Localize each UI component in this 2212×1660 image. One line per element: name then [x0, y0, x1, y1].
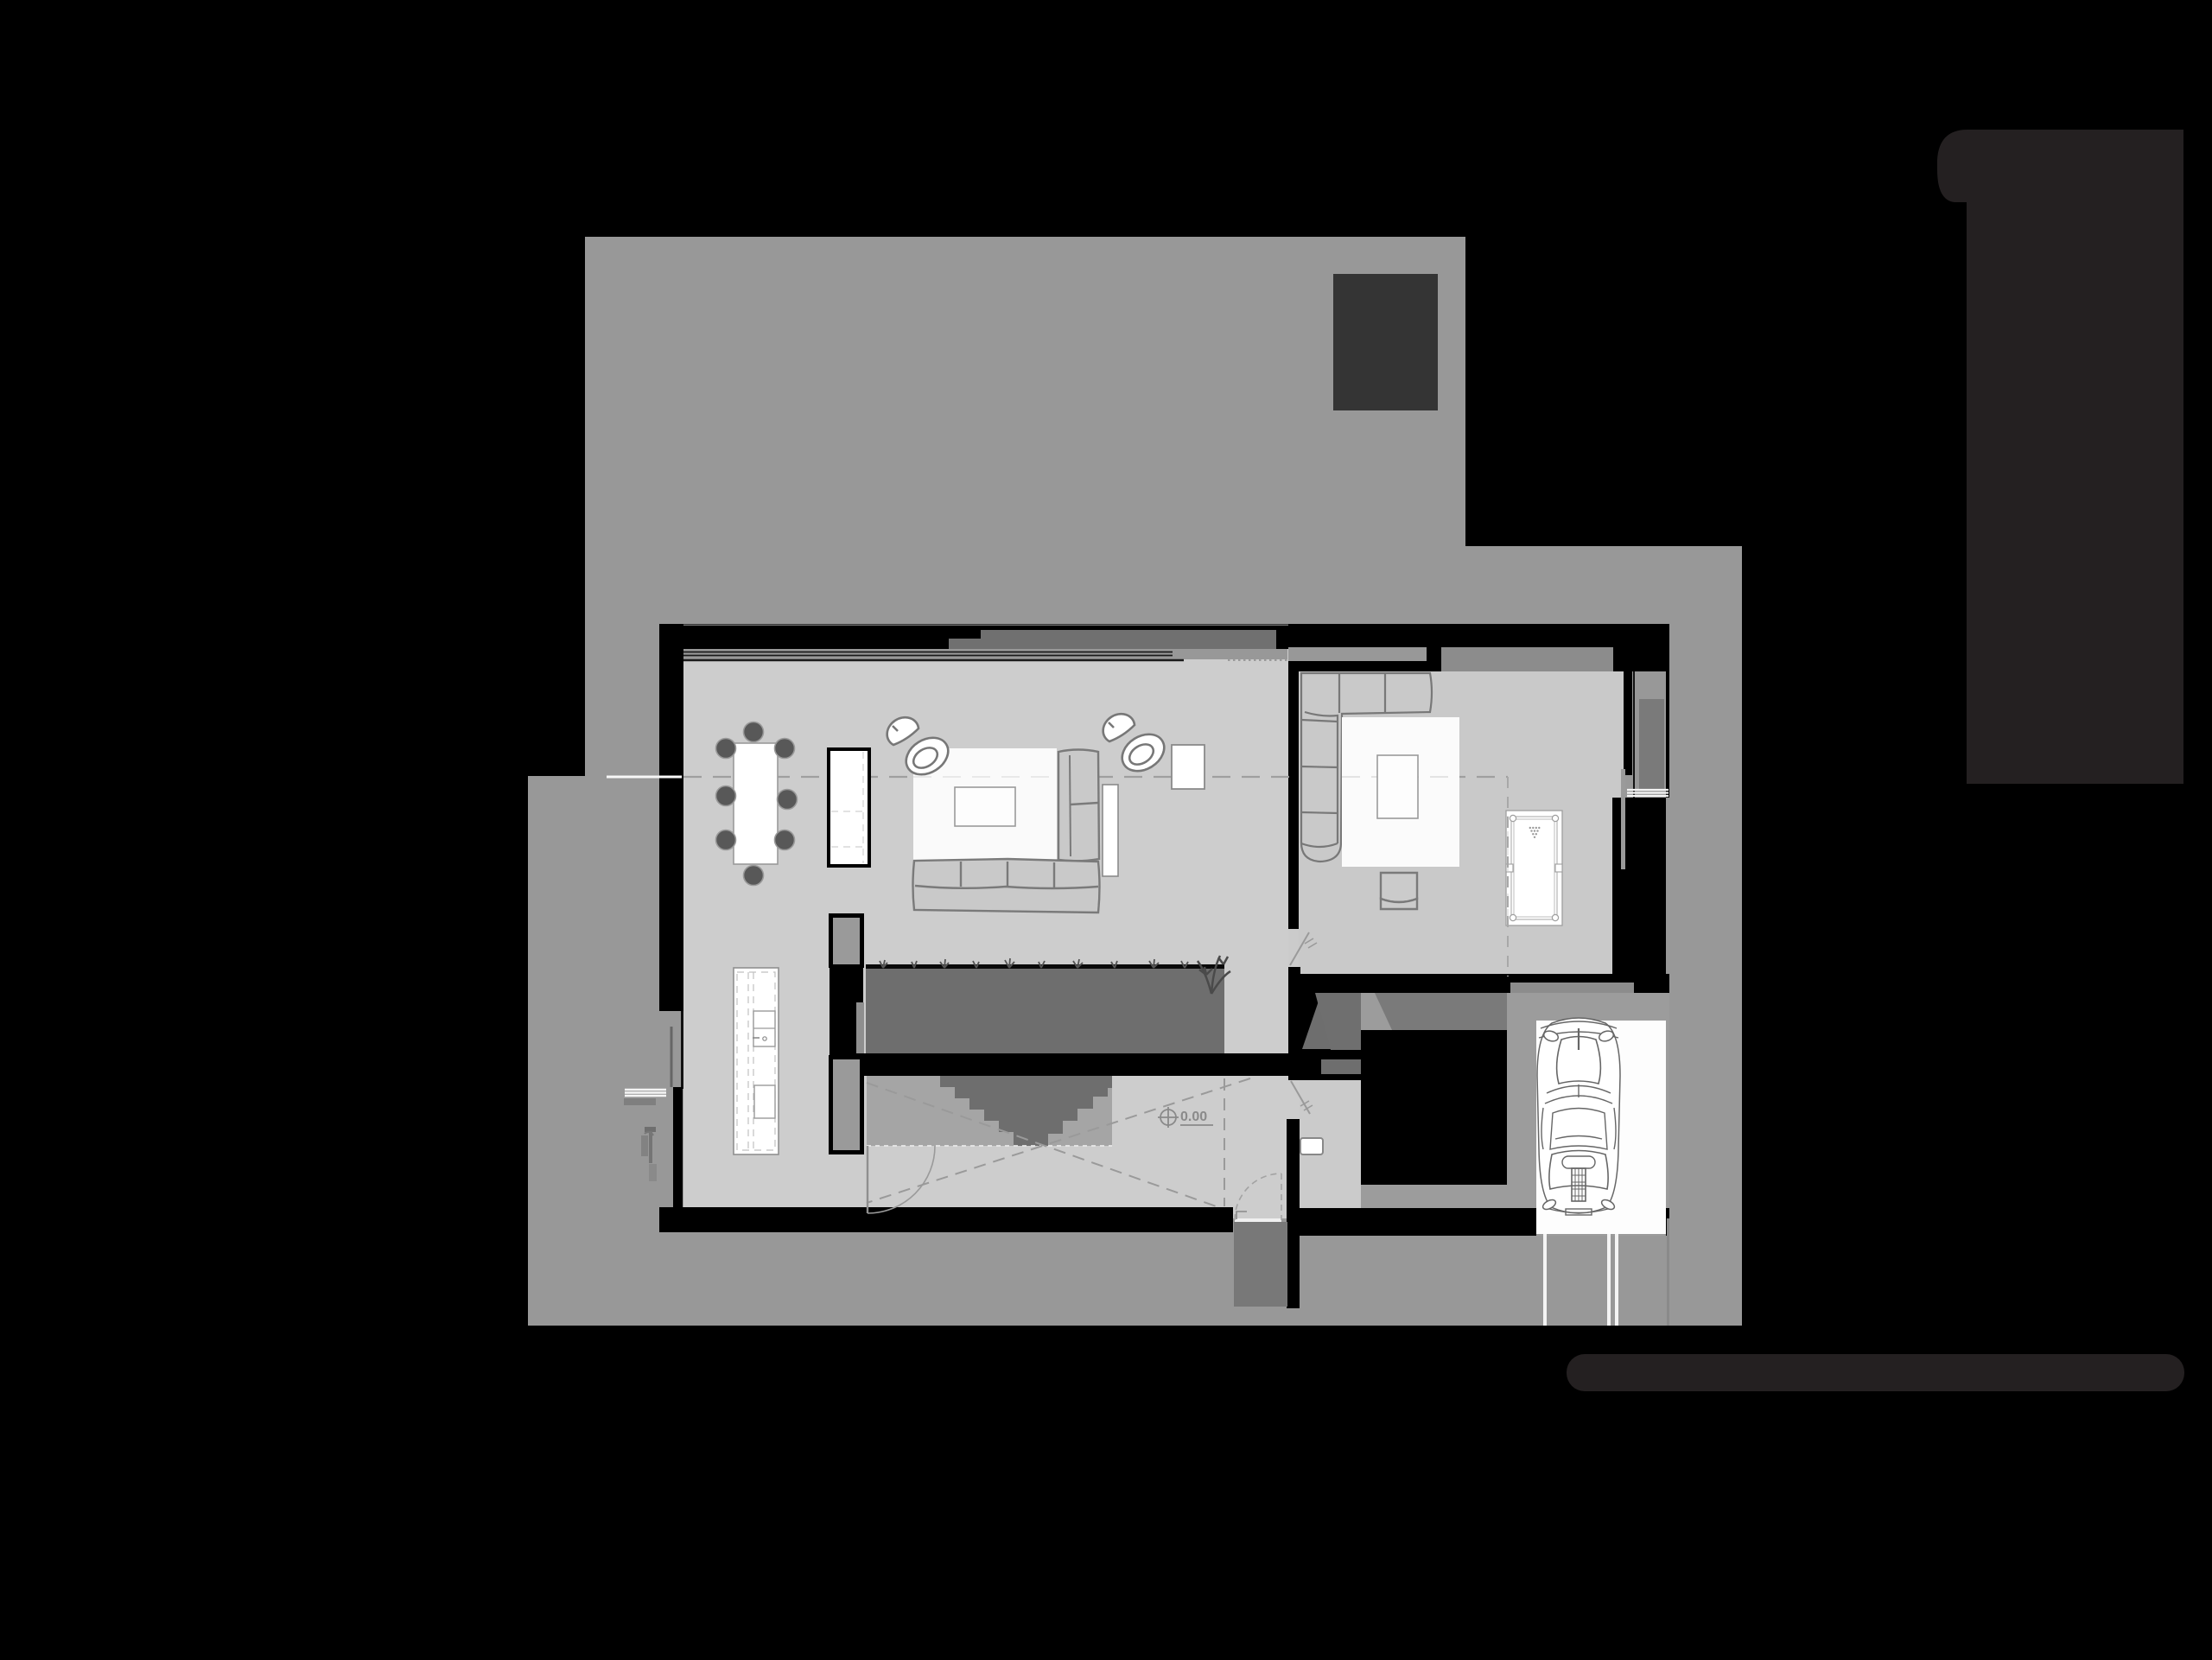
svg-text:0.00: 0.00 [1180, 1110, 1207, 1124]
